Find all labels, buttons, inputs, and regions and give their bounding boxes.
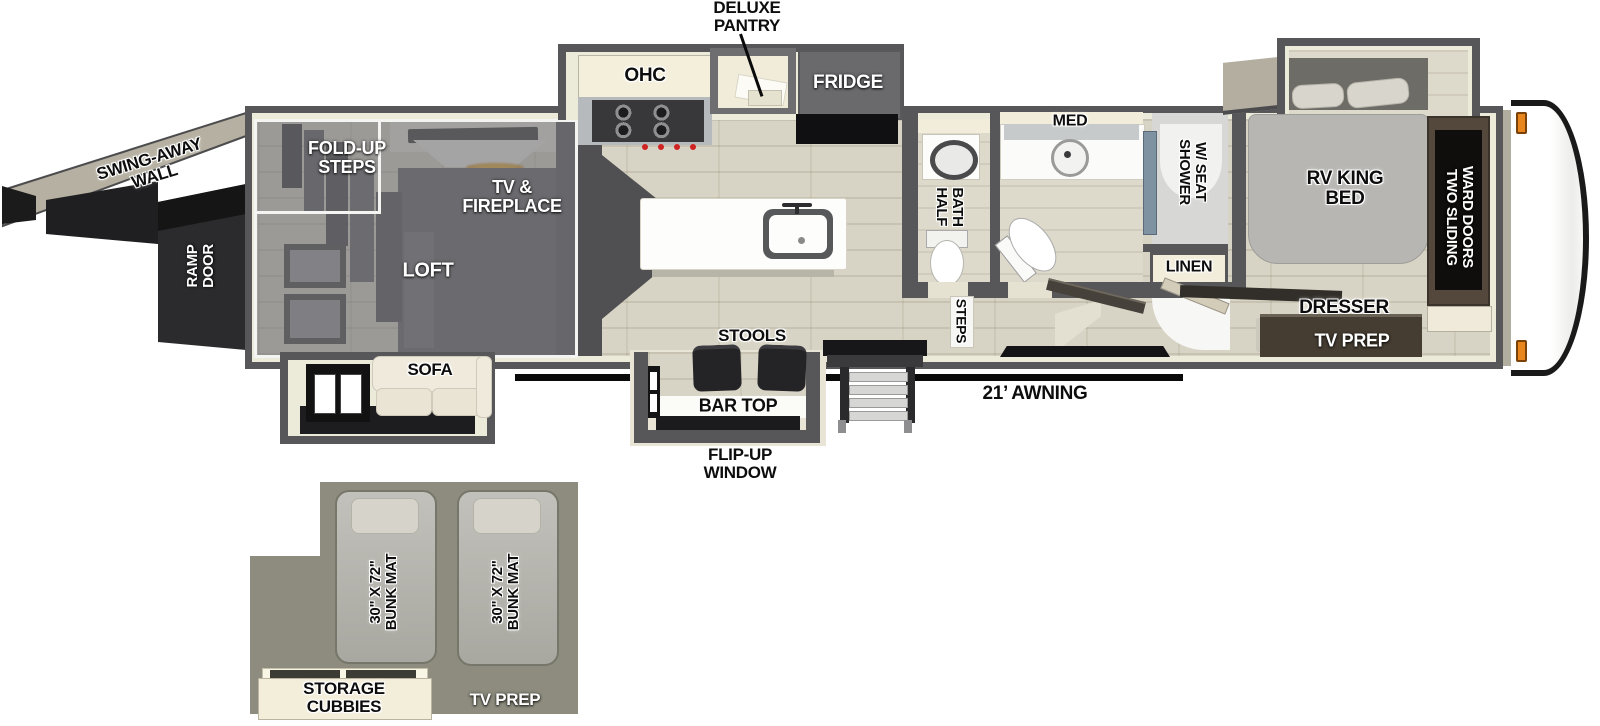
front-cap <box>1511 100 1589 376</box>
bunk-pillow-right <box>473 498 541 534</box>
loft-tv-prep-label: TV PREP <box>470 691 541 709</box>
wardrobe-base-cabinet <box>1427 306 1492 332</box>
entry-step-2 <box>849 385 908 395</box>
faucet-stem <box>795 203 799 214</box>
bar-slide-right-wall <box>806 352 820 442</box>
bar-slide-left-wall <box>634 352 648 442</box>
stove-knob-4 <box>690 144 696 150</box>
marker-light-bottom <box>1516 340 1527 362</box>
entry-step-4 <box>849 411 908 421</box>
fold-up-steps-label: FOLD-UP STEPS <box>308 139 386 177</box>
fridge-label: FRIDGE <box>813 73 883 93</box>
entry-step-3 <box>849 398 908 408</box>
fridge-front-shadow <box>796 114 898 144</box>
ramp-door-label: RAMP DOOR <box>185 244 217 288</box>
entry-step-foot-left <box>838 420 846 433</box>
entry-step-rail-left <box>840 367 849 423</box>
half-bath-toilet-bowl <box>930 240 964 286</box>
sofa-seat-1 <box>376 388 432 416</box>
deluxe-pantry-label: DELUXE PANTRY <box>713 0 780 35</box>
shower-linen-wall <box>1143 244 1228 252</box>
stove-knob-1 <box>642 144 648 150</box>
stools-label: STOOLS <box>718 327 786 345</box>
sink-basin <box>769 215 827 253</box>
sofa-window-pane-2 <box>340 374 362 414</box>
stove-knob-3 <box>674 144 680 150</box>
storage-cubbies-label: STORAGE CUBBIES <box>303 680 385 716</box>
bath-doorway <box>1008 282 1052 298</box>
stove-cooktop <box>592 100 704 142</box>
wardrobe-label: TWO SLIDING WARD DOORS <box>1443 166 1475 268</box>
sofa-window-pane-1 <box>314 374 336 414</box>
stool-2 <box>757 344 807 392</box>
kitchen-bath-wall <box>902 106 918 296</box>
shower-label: SHOWER W/ SEAT <box>1176 139 1208 205</box>
bar-window-slit-1 <box>650 372 657 390</box>
stove-knob-2 <box>658 144 664 150</box>
entry-step-1 <box>849 372 908 382</box>
marker-light-top <box>1516 112 1527 134</box>
entry-step-foot-right <box>904 420 912 433</box>
half-bath-counter <box>918 119 990 133</box>
stool-1 <box>692 344 742 392</box>
half-bath-sink <box>930 140 978 180</box>
pillow-left <box>1291 83 1344 110</box>
bunk-pillow-left <box>351 498 419 534</box>
pantry-shelf <box>748 90 782 106</box>
bar-counter-edge <box>656 416 800 430</box>
bedroom-wall <box>1232 106 1246 296</box>
bunk-mat-right-label: 30" X 72" BUNK MAT <box>490 554 522 630</box>
steps-label: STEPS <box>954 299 969 343</box>
loft-label: LOFT <box>402 260 453 281</box>
sofa-armrest <box>476 356 492 418</box>
sofa-label: SOFA <box>407 361 452 379</box>
tv-prep-label: TV PREP <box>1315 331 1390 350</box>
half-bath-label: HALF BATH <box>933 187 965 226</box>
bath-sink <box>1051 139 1089 177</box>
bar-top-label: BAR TOP <box>699 396 778 415</box>
flip-up-window-label: FLIP-UP WINDOW <box>704 446 777 482</box>
bar-window-slit-2 <box>650 394 657 412</box>
bedroom-slide-roof-edge <box>1223 57 1277 115</box>
shower-glass <box>1143 131 1157 235</box>
med-label: MED <box>1053 114 1088 131</box>
hall-entry-mat <box>1000 346 1170 357</box>
tv-fireplace-label: TV & FIREPLACE <box>462 178 561 216</box>
storage-cubby-slot-1 <box>270 670 340 678</box>
rv-floorplan: SWING-AWAY WALL RAMP DOOR 21’ AWNING FOL… <box>0 0 1600 726</box>
bar-slide-bottom-wall <box>634 430 820 443</box>
storage-cubby-slot-2 <box>346 670 416 678</box>
awning-label: 21’ AWNING <box>982 384 1087 404</box>
entry-step-platform <box>827 355 923 367</box>
linen-label: LINEN <box>1166 260 1213 277</box>
ohc-label: OHC <box>624 66 665 86</box>
bath-partition-wall <box>990 106 1000 282</box>
bunk-mat-left-label: 30" X 72" BUNK MAT <box>368 554 400 630</box>
rv-king-bed-label: RV KING BED <box>1307 169 1384 209</box>
entry-door-mat <box>823 340 927 356</box>
bath-sink-drain <box>1064 151 1071 158</box>
sink-drain <box>798 237 805 244</box>
